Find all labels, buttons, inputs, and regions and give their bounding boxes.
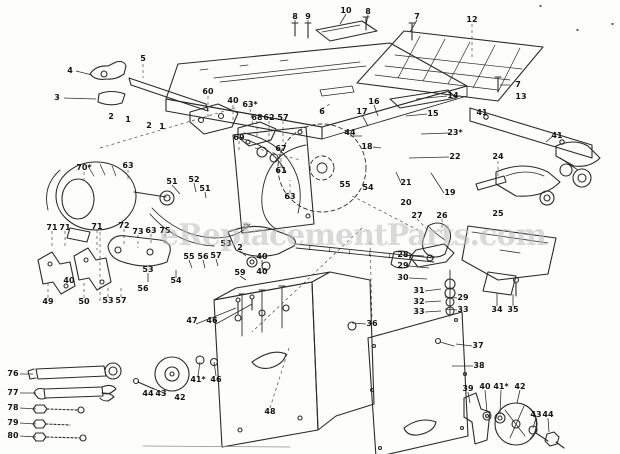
part-label-5: 5 xyxy=(140,55,146,63)
part-label-41: 41 xyxy=(476,109,487,117)
part-label-40: 40 xyxy=(479,383,490,391)
part-label-62: 62 xyxy=(263,114,274,122)
part-label-43: 43 xyxy=(155,390,166,398)
part-label-51: 51 xyxy=(199,185,210,193)
part-label-68: 68 xyxy=(251,114,262,122)
part-label-44: 44 xyxy=(542,411,553,419)
part-label-46: 46 xyxy=(210,376,221,384)
part-label-2: 2 xyxy=(146,122,152,130)
part-label-33: 33 xyxy=(457,306,468,314)
part-label-29: 29 xyxy=(397,262,408,270)
part-label-30: 30 xyxy=(397,274,408,282)
part-label-50: 50 xyxy=(78,298,89,306)
part-label-8: 8 xyxy=(292,13,298,21)
part-label-56: 56 xyxy=(137,285,148,293)
part-label-40: 40 xyxy=(256,253,267,261)
part-label-71: 71 xyxy=(91,223,102,231)
part-label-47: 47 xyxy=(186,317,197,325)
part-label-76: 76 xyxy=(7,370,18,378)
part-label-40: 40 xyxy=(63,277,74,285)
parts-diagram-canvas: eReplacementParts.com 435212189108712713… xyxy=(0,0,620,454)
part-label-42: 42 xyxy=(174,394,185,402)
part-label-55: 55 xyxy=(183,253,194,261)
part-label-3: 3 xyxy=(54,94,60,102)
part-label-57: 57 xyxy=(277,114,288,122)
part-label-20: 20 xyxy=(400,199,411,207)
part-label-16: 16 xyxy=(368,98,379,106)
part-label-14: 14 xyxy=(447,92,458,100)
part-label-44: 44 xyxy=(344,129,355,137)
part-label-73: 73 xyxy=(132,228,143,236)
part-label-1: 1 xyxy=(159,123,165,131)
part-label-25: 25 xyxy=(492,210,503,218)
part-label-53: 53 xyxy=(102,297,113,305)
part-label-53: 53 xyxy=(142,266,153,274)
part-label-57: 57 xyxy=(115,297,126,305)
part-label-13: 13 xyxy=(515,93,526,101)
part-label-55: 55 xyxy=(339,181,350,189)
part-label-80: 80 xyxy=(7,432,18,440)
part-label-41: 41 xyxy=(551,132,562,140)
part-label-18: 18 xyxy=(361,143,372,151)
part-label-27: 27 xyxy=(411,212,422,220)
part-label-72: 72 xyxy=(118,222,129,230)
part-label-71: 71 xyxy=(59,224,70,232)
part-label-41: 41* xyxy=(190,376,205,384)
part-label-38: 38 xyxy=(473,362,484,370)
part-label-33: 33 xyxy=(413,308,424,316)
part-label-15: 15 xyxy=(427,110,438,118)
part-label-10: 10 xyxy=(340,7,351,15)
part-label-79: 79 xyxy=(7,419,18,427)
part-label-77: 77 xyxy=(7,389,18,397)
part-label-32: 32 xyxy=(413,298,424,306)
part-label-23: 23* xyxy=(447,129,462,137)
part-label-44: 44 xyxy=(142,390,153,398)
part-label-43: 43 xyxy=(530,411,541,419)
part-label-49: 49 xyxy=(42,298,53,306)
part-label-36: 36 xyxy=(366,320,377,328)
part-label-26: 26 xyxy=(436,212,447,220)
part-label-8: 8 xyxy=(365,8,371,16)
part-label-7: 7 xyxy=(414,13,420,21)
part-label-31: 31 xyxy=(413,287,424,295)
part-label-78: 78 xyxy=(7,404,18,412)
part-label-69: 69 xyxy=(233,134,244,142)
part-label-35: 35 xyxy=(507,306,518,314)
part-label-54: 54 xyxy=(362,184,373,192)
part-label-40: 40 xyxy=(227,97,238,105)
part-label-19: 19 xyxy=(444,189,455,197)
part-label-12: 12 xyxy=(466,16,477,24)
part-label-63: 63* xyxy=(242,101,257,109)
part-label-7: 7 xyxy=(515,81,521,89)
part-label-75: 75 xyxy=(159,227,170,235)
part-label-63: 63 xyxy=(145,227,156,235)
part-label-56: 56 xyxy=(197,253,208,261)
part-label-40: 40 xyxy=(256,268,267,276)
part-label-29: 29 xyxy=(457,294,468,302)
part-label-39: 39 xyxy=(462,385,473,393)
part-label-60: 60 xyxy=(202,88,213,96)
part-label-28: 28 xyxy=(397,251,408,259)
part-label-37: 37 xyxy=(472,342,483,350)
part-label-34: 34 xyxy=(491,306,502,314)
part-label-52: 52 xyxy=(188,176,199,184)
part-label-54: 54 xyxy=(170,277,181,285)
part-label-48: 48 xyxy=(264,408,275,416)
part-label-57: 57 xyxy=(210,252,221,260)
part-label-71: 71 xyxy=(46,224,57,232)
part-label-70: 70* xyxy=(76,164,91,172)
part-label-9: 9 xyxy=(305,13,311,21)
part-label-21: 21 xyxy=(400,179,411,187)
part-label-53: 53 xyxy=(220,240,231,248)
part-label-1: 1 xyxy=(125,116,131,124)
part-label-2: 2 xyxy=(237,244,243,252)
part-label-61: 61 xyxy=(275,167,286,175)
part-label-24: 24 xyxy=(492,153,503,161)
part-label-46: 46 xyxy=(206,317,217,325)
part-label-4: 4 xyxy=(67,67,73,75)
part-label-6: 6 xyxy=(319,108,325,116)
part-label-17: 17 xyxy=(356,108,367,116)
part-label-41: 41* xyxy=(493,383,508,391)
part-label-2: 2 xyxy=(108,113,114,121)
part-label-67: 67 xyxy=(275,145,286,153)
part-labels-layer: 43521218910871271361716604063*6862576967… xyxy=(0,0,620,454)
part-label-63: 63 xyxy=(122,162,133,170)
part-label-42: 42 xyxy=(514,383,525,391)
part-label-22: 22 xyxy=(449,153,460,161)
part-label-51: 51 xyxy=(166,178,177,186)
part-label-59: 59 xyxy=(234,269,245,277)
part-label-63: 63 xyxy=(284,193,295,201)
